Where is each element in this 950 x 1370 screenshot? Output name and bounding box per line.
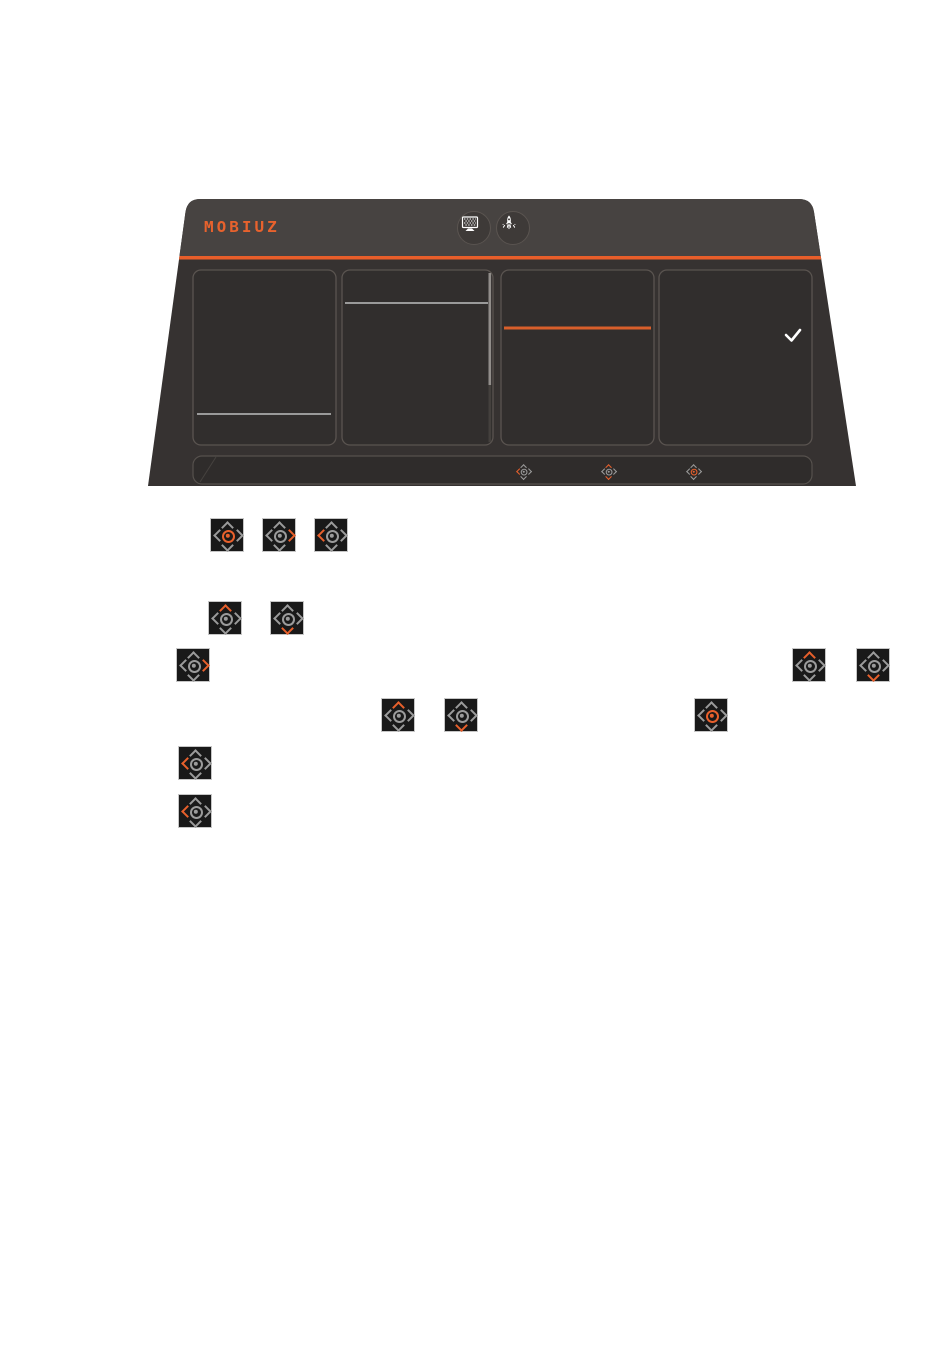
osd-panel-3 bbox=[501, 270, 654, 445]
joystick-center-button bbox=[190, 758, 203, 771]
osd-panel-4 bbox=[659, 270, 812, 445]
joystick-5way-icon-center bbox=[694, 698, 728, 732]
joystick-center-button bbox=[393, 710, 406, 723]
joystick-5way-icon-left bbox=[178, 746, 212, 780]
joystick-5way-icon-down bbox=[856, 648, 890, 682]
joystick-5way-icon-up bbox=[792, 648, 826, 682]
joystick-5way-icon-left bbox=[178, 794, 212, 828]
joystick-center-button bbox=[282, 613, 295, 626]
display-scenario-glyph bbox=[458, 212, 482, 236]
joystick-5way-icon-center bbox=[685, 463, 703, 481]
joystick-center-button bbox=[868, 660, 881, 673]
manual-page: { "page": { "kind": "monitor-manual-illu… bbox=[0, 0, 950, 1370]
joystick-5way-icon-right bbox=[262, 518, 296, 552]
joystick-center-button bbox=[274, 530, 287, 543]
display-scenario-icon bbox=[457, 211, 491, 245]
joystick-5way-icon-up bbox=[381, 698, 415, 732]
joystick-5way-icon-down bbox=[270, 601, 304, 635]
joystick-center-button bbox=[326, 530, 339, 543]
osd-panel-1 bbox=[193, 270, 336, 445]
joystick-center-button bbox=[220, 613, 233, 626]
joystick-center-button bbox=[690, 468, 697, 475]
joystick-5way-icon-up bbox=[208, 601, 242, 635]
joystick-center-button bbox=[188, 660, 201, 673]
joystick-center-button bbox=[456, 710, 469, 723]
joystick-5way-icon-down bbox=[444, 698, 478, 732]
joystick-5way-icon-center bbox=[210, 518, 244, 552]
joystick-center-button bbox=[605, 468, 612, 475]
osd-menu-illustration: MOBIUZ bbox=[140, 198, 860, 486]
joystick-center-button bbox=[190, 806, 203, 819]
osd-hotkey-bar bbox=[193, 456, 812, 484]
game-rocket-glyph bbox=[497, 212, 521, 236]
game-rocket-icon bbox=[496, 211, 530, 245]
osd-monitor-graphic bbox=[140, 198, 860, 486]
joystick-5way-icon-left bbox=[314, 518, 348, 552]
panel2-scrollbar-thumb bbox=[489, 273, 492, 385]
brand-logo: MOBIUZ bbox=[204, 218, 280, 237]
joystick-5way-icon-right bbox=[176, 648, 210, 682]
joystick-center-button bbox=[804, 660, 817, 673]
osd-accent-line bbox=[140, 256, 860, 260]
joystick-5way-icon-left bbox=[515, 463, 533, 481]
joystick-center-button bbox=[520, 468, 527, 475]
joystick-center-button bbox=[222, 530, 235, 543]
joystick-5way-icon-up-down bbox=[600, 463, 618, 481]
osd-panel-2 bbox=[342, 270, 493, 445]
joystick-center-button bbox=[706, 710, 719, 723]
